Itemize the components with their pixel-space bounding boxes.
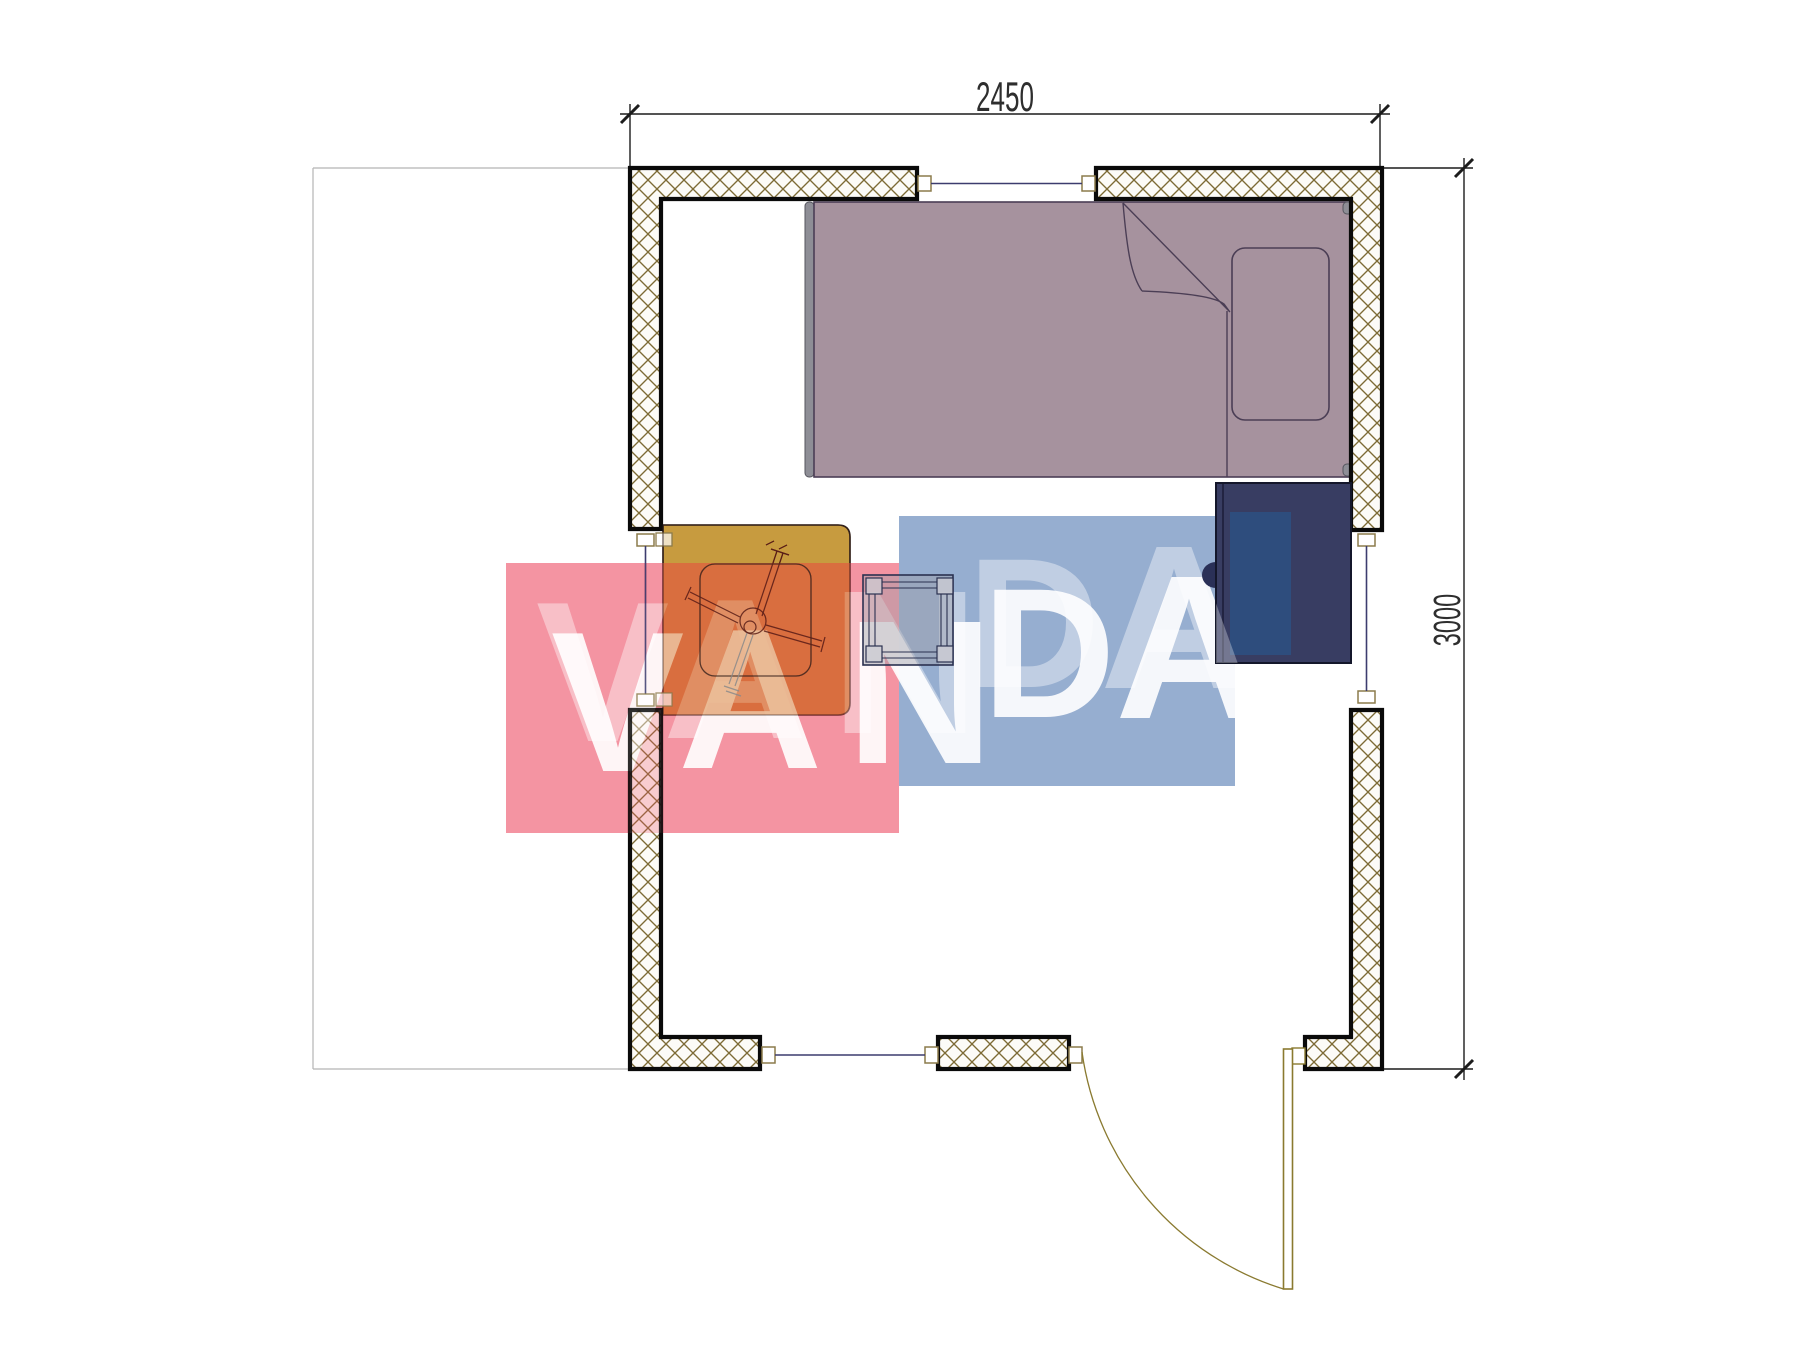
svg-text:3000: 3000 xyxy=(1425,594,1468,646)
svg-text:D: D xyxy=(982,551,1116,757)
svg-text:2450: 2450 xyxy=(976,74,1034,121)
